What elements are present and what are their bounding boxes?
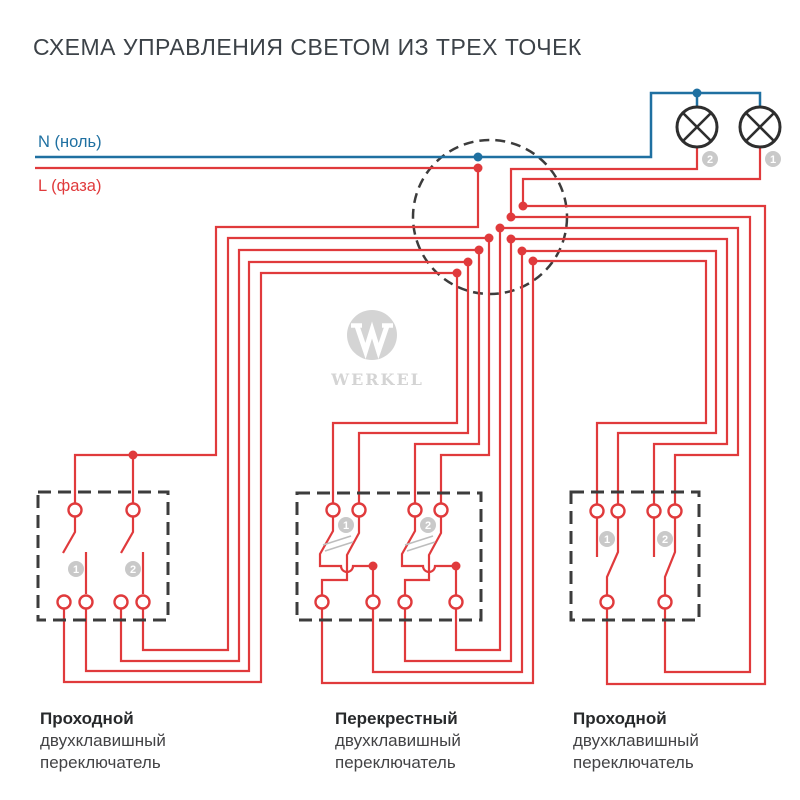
connection-dot [496,224,505,233]
werkel-logo-icon [347,310,397,360]
watermark-brand: WERKEL [300,370,455,389]
connection-dot [518,247,527,256]
diagram-canvas: 2 1 1 2 [0,0,800,800]
terminal [648,505,661,518]
wiring-diagram: 2 1 1 2 [0,0,800,800]
terminal [601,596,614,609]
traveler-wires-sw1-sw2 [64,234,494,683]
terminal [80,596,93,609]
terminal [58,596,71,609]
lamp2-wire [511,147,750,672]
connection-dot [369,562,378,571]
lamp-badge-number: 1 [770,154,776,166]
connection-dot [452,562,461,571]
connection-dot [453,269,462,278]
connection-dot [519,202,528,211]
svg-text:1: 1 [73,564,79,576]
lamp-badge-number: 2 [707,154,713,166]
svg-text:1: 1 [343,520,349,532]
terminal [115,596,128,609]
terminal [137,596,150,609]
terminal [669,505,682,518]
page-title: СХЕМА УПРАВЛЕНИЯ СВЕТОМ ИЗ ТРЕХ ТОЧЕК [33,34,582,61]
switch-1: 1 2 [38,492,168,620]
terminal [409,504,422,517]
terminal [353,504,366,517]
svg-text:2: 2 [425,520,431,532]
switch-2-crossover: 1 2 [297,493,481,620]
switch-2-label: Перекрестный двухклавишный переключатель [335,708,461,774]
connection-dot [485,234,494,243]
svg-text:2: 2 [662,534,668,546]
connection-dot [464,258,473,267]
terminal [659,596,672,609]
neutral-wire [35,89,760,162]
switch-1-label: Проходной двухклавишный переключатель [40,708,166,774]
connection-dot [507,213,516,222]
svg-text:2: 2 [130,564,136,576]
neutral-wire-label: N (ноль) [38,133,102,152]
phase-wire-label: L (фаза) [38,177,101,196]
traveler-wires-sw2-sw3 [322,224,738,684]
switch-lever [607,518,618,595]
switch-3: 1 2 [571,492,699,620]
connection-dot [474,153,483,162]
connection-dot [475,246,484,255]
connection-dot [129,451,138,460]
terminal [367,596,380,609]
terminal [316,596,329,609]
terminal [69,504,82,517]
svg-text:1: 1 [604,534,610,546]
terminal [612,505,625,518]
switch-lever [121,517,133,553]
connection-dot [529,257,538,266]
terminal [450,596,463,609]
switch-3-label: Проходной двухклавишный переключатель [573,708,699,774]
terminal [435,504,448,517]
terminal [327,504,340,517]
connection-dot [693,89,702,98]
connection-dot [474,164,483,173]
terminal [591,505,604,518]
terminal [127,504,140,517]
connection-dot [507,235,516,244]
switch-lever [665,518,675,595]
switch-lever [63,517,75,553]
terminal [399,596,412,609]
